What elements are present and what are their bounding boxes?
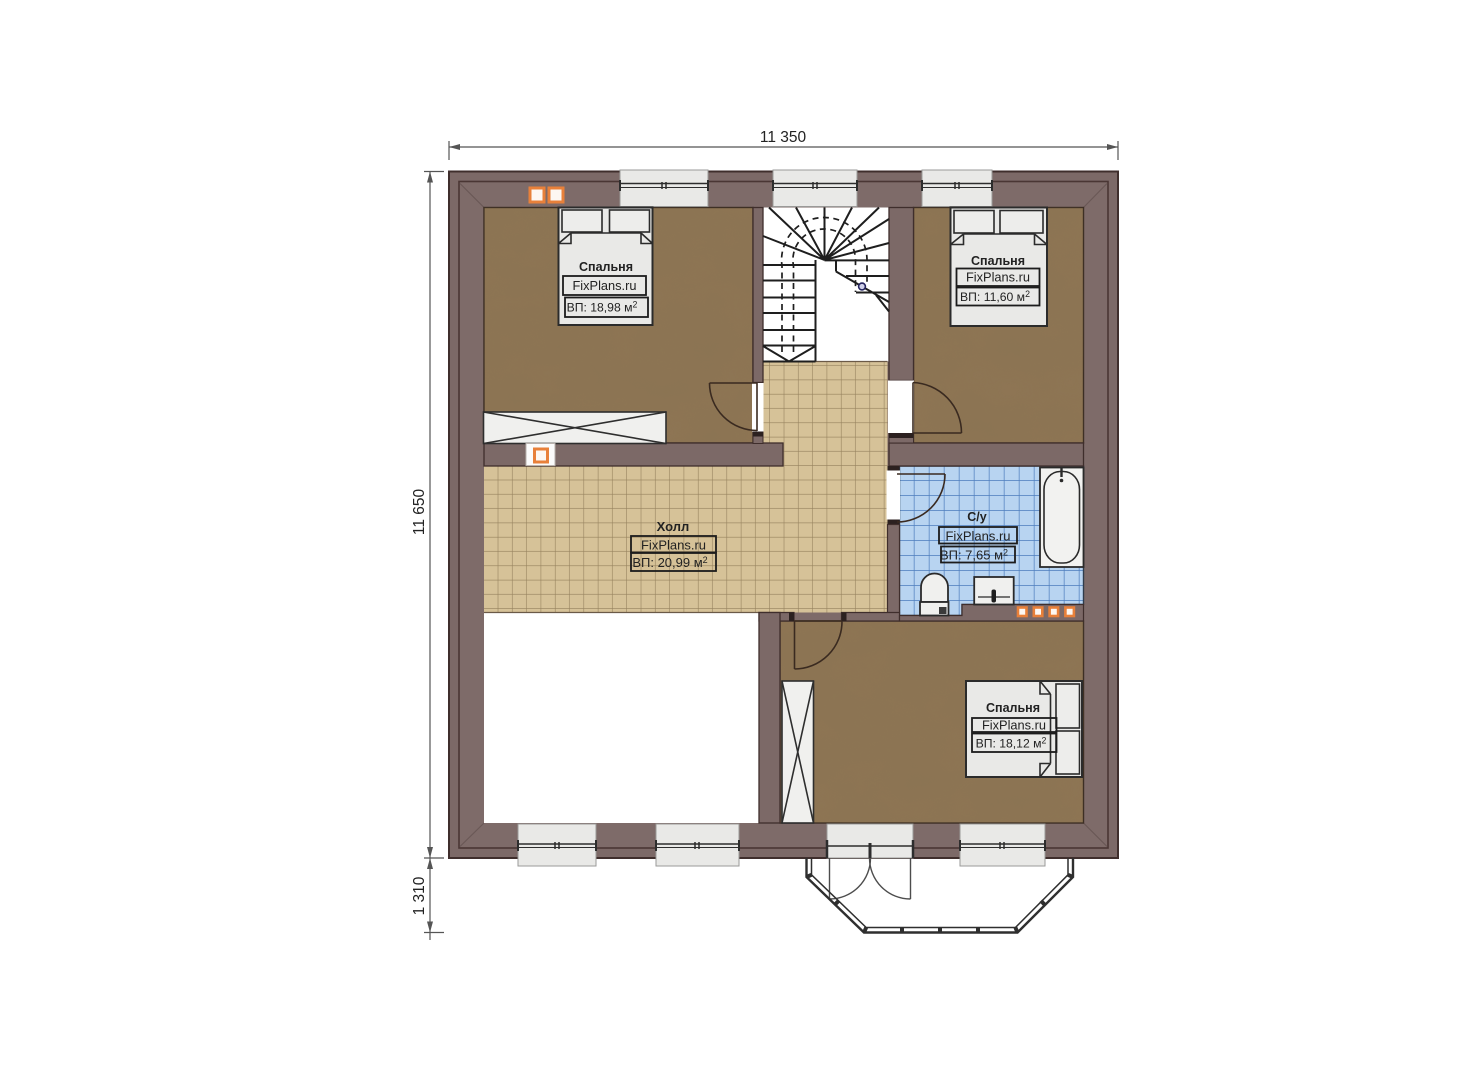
svg-text:ВП: 11,60 м2: ВП: 11,60 м2 <box>960 289 1030 304</box>
svg-text:Спальня: Спальня <box>579 260 633 274</box>
svg-text:11 650: 11 650 <box>411 488 428 535</box>
svg-text:Спальня: Спальня <box>971 254 1025 268</box>
svg-text:ВП: 18,12 м2: ВП: 18,12 м2 <box>976 736 1047 751</box>
svg-text:FixPlans.ru: FixPlans.ru <box>966 270 1030 285</box>
svg-text:FixPlans.ru: FixPlans.ru <box>641 538 706 553</box>
svg-text:ВП: 20,99 м2: ВП: 20,99 м2 <box>632 555 707 570</box>
svg-text:FixPlans.ru: FixPlans.ru <box>982 718 1046 733</box>
svg-text:FixPlans.ru: FixPlans.ru <box>945 529 1010 544</box>
svg-text:Холл: Холл <box>657 519 690 534</box>
svg-text:1 310: 1 310 <box>411 876 428 915</box>
svg-text:Спальня: Спальня <box>986 701 1040 715</box>
svg-text:ВП: 7,65 м2: ВП: 7,65 м2 <box>940 548 1008 563</box>
svg-text:ВП: 18,98 м2: ВП: 18,98 м2 <box>567 300 638 315</box>
svg-text:С/у: С/у <box>967 510 987 524</box>
svg-text:FixPlans.ru: FixPlans.ru <box>572 278 636 293</box>
svg-text:11 350: 11 350 <box>760 129 807 146</box>
